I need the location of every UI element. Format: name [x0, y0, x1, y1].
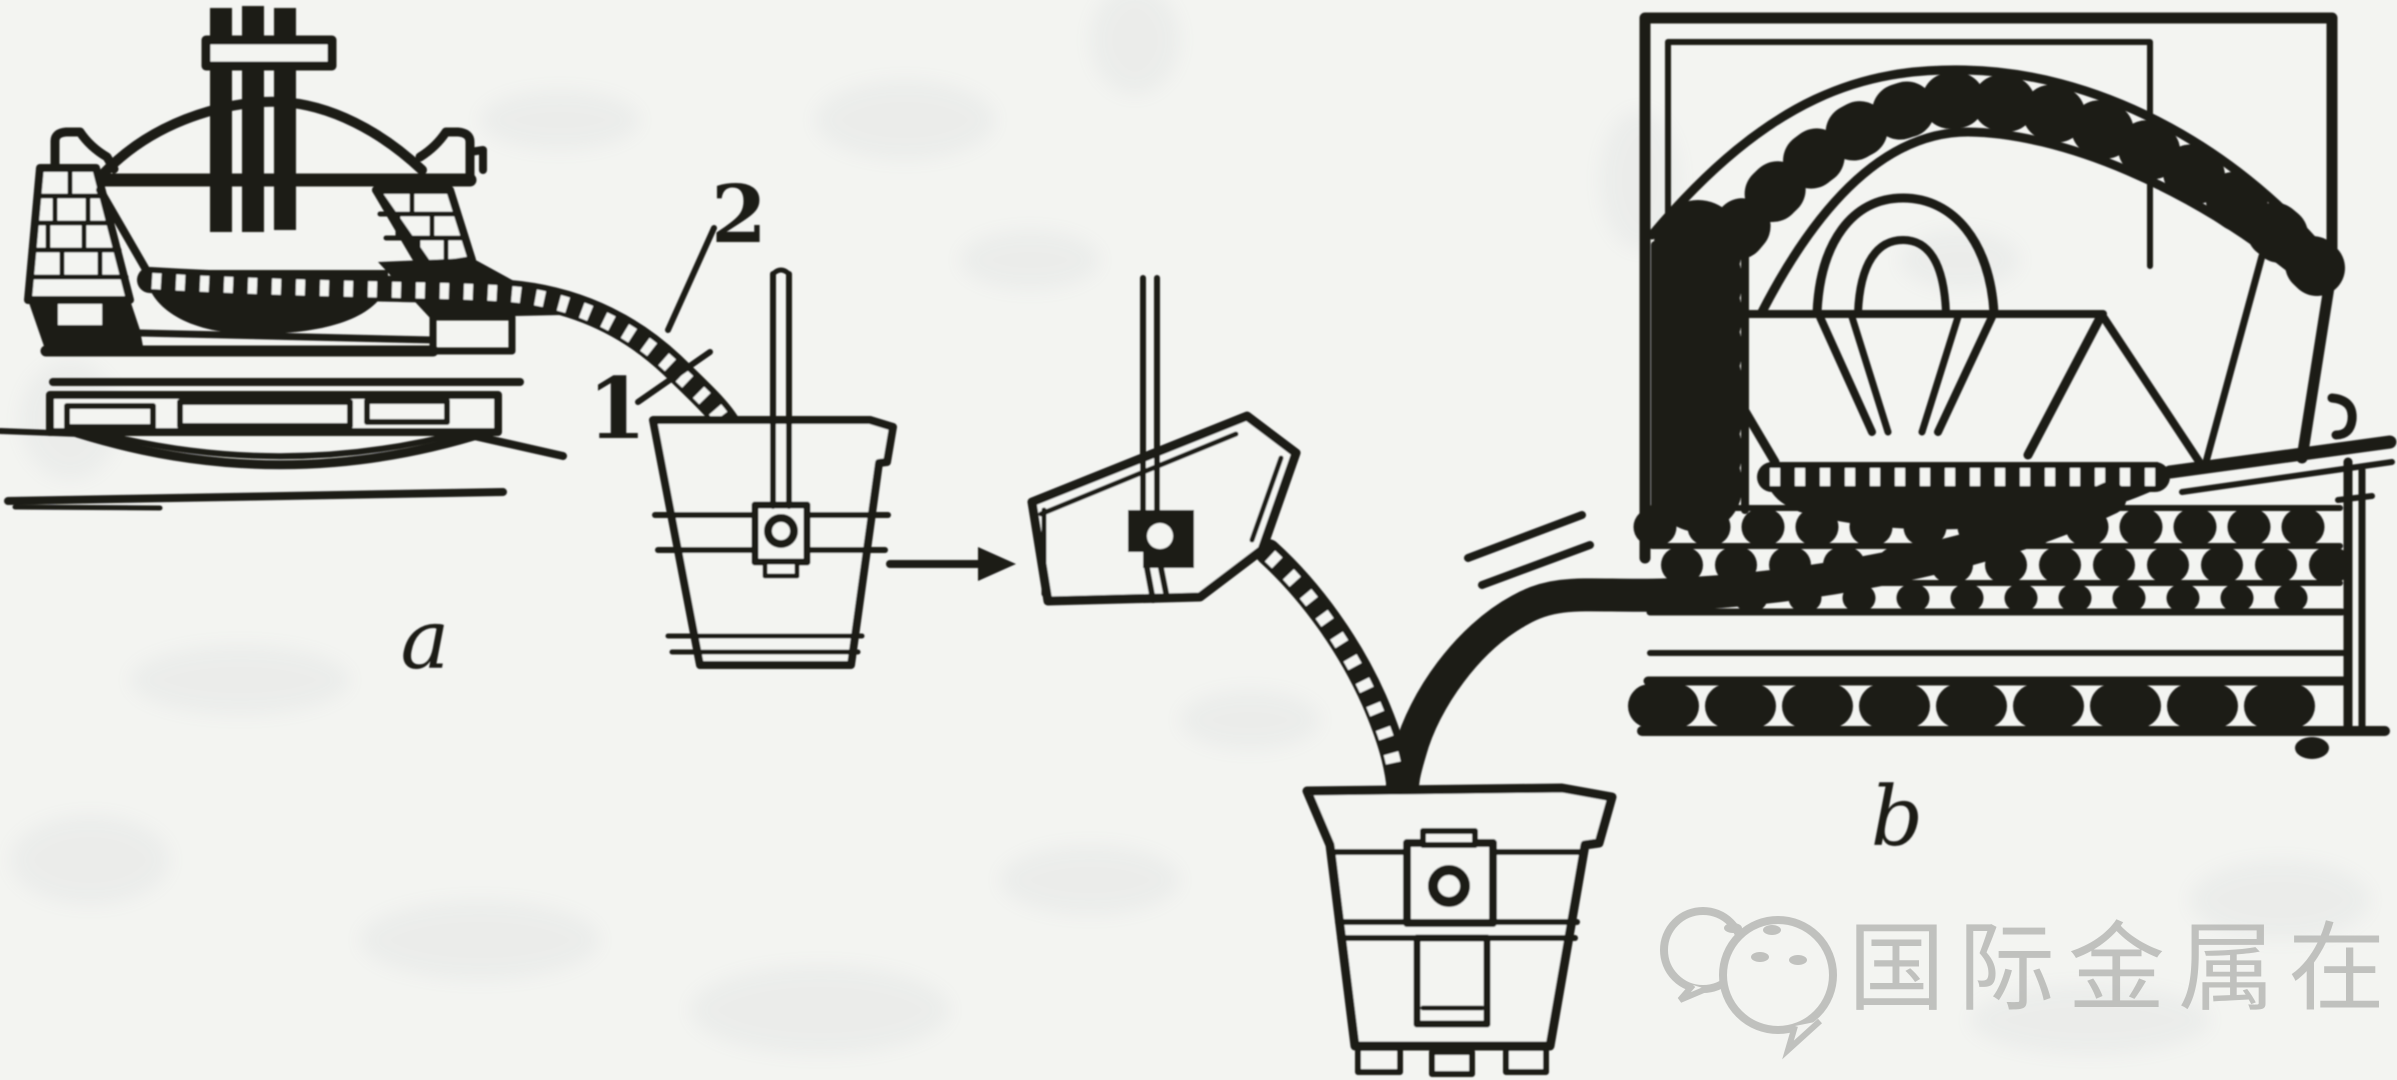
receiving-ladle-trunnion-plate	[1407, 843, 1493, 923]
transfer-arrow-icon	[890, 547, 1016, 581]
metallurgy-process-diagram: 2 1 a b 国际金属在线	[0, 0, 2397, 1080]
callout-1: 1	[588, 359, 646, 458]
electrodes	[206, 6, 332, 232]
panel-label-a: a	[401, 593, 450, 688]
ladle-foot	[1432, 1052, 1472, 1074]
tap-spout-trough	[1468, 515, 1590, 585]
callout-2: 2	[711, 167, 767, 261]
base-foot	[2295, 737, 2329, 759]
door-hook	[2332, 398, 2352, 435]
pour-stream-tilted-ladle	[1268, 552, 1400, 792]
ladle-foot	[1358, 1048, 1400, 1072]
electrode-holder	[206, 40, 332, 66]
scanned-diagram-page: 2 1 a b 国际金属在线	[0, 0, 2397, 1080]
ladle-foot	[1506, 1048, 1546, 1072]
watermark-text: 国际金属在线	[1848, 912, 2397, 1025]
callout-2-leader	[668, 228, 714, 330]
open-hearth-furnace	[1468, 18, 2392, 759]
lifting-ear-right	[420, 132, 470, 177]
receiving-ladle	[1307, 788, 1612, 1074]
electric-arc-furnace	[0, 6, 563, 508]
panel-label-b: b	[1871, 770, 1924, 865]
receiving-ladle-nozzle-block	[1417, 938, 1487, 1024]
ground-line	[8, 492, 503, 501]
tilting-rocker	[50, 395, 498, 465]
transfer-ladle-trunnion-plate	[755, 505, 807, 562]
port-throat	[1820, 317, 1872, 432]
tilted-ladle-trunnion-pin	[1147, 523, 1173, 549]
transfer-ladle	[653, 270, 893, 665]
tilted-pouring-ladle	[1032, 278, 1296, 601]
left-brick-column	[1655, 240, 1745, 510]
hearth-right-wall	[2028, 318, 2100, 455]
chat-bubbles-logo-icon	[1664, 911, 1833, 1050]
